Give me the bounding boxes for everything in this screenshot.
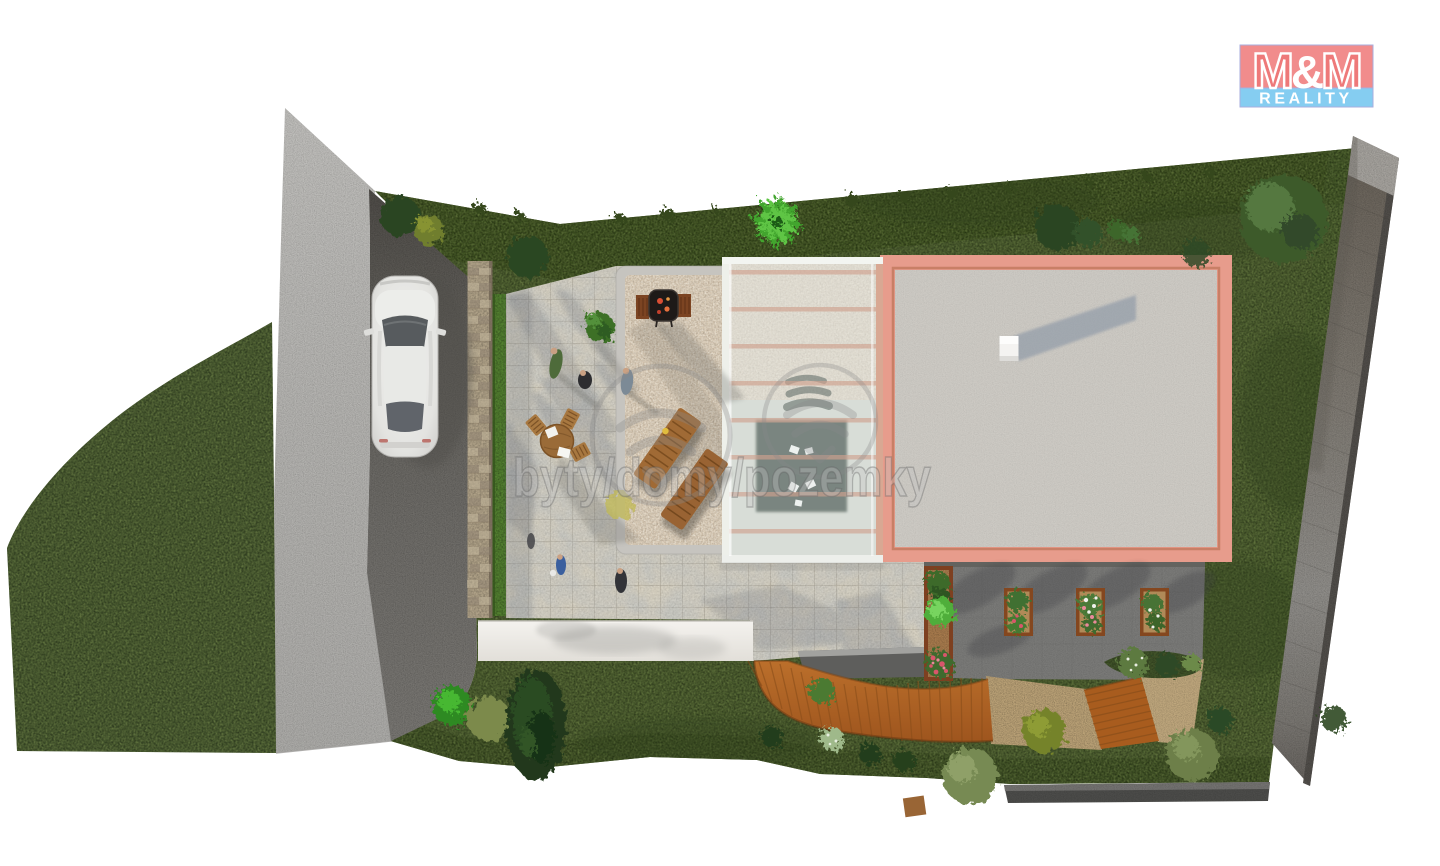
- svg-text:REALITY: REALITY: [1259, 91, 1353, 108]
- svg-text:byty/domy/pozemky: byty/domy/pozemky: [513, 448, 931, 508]
